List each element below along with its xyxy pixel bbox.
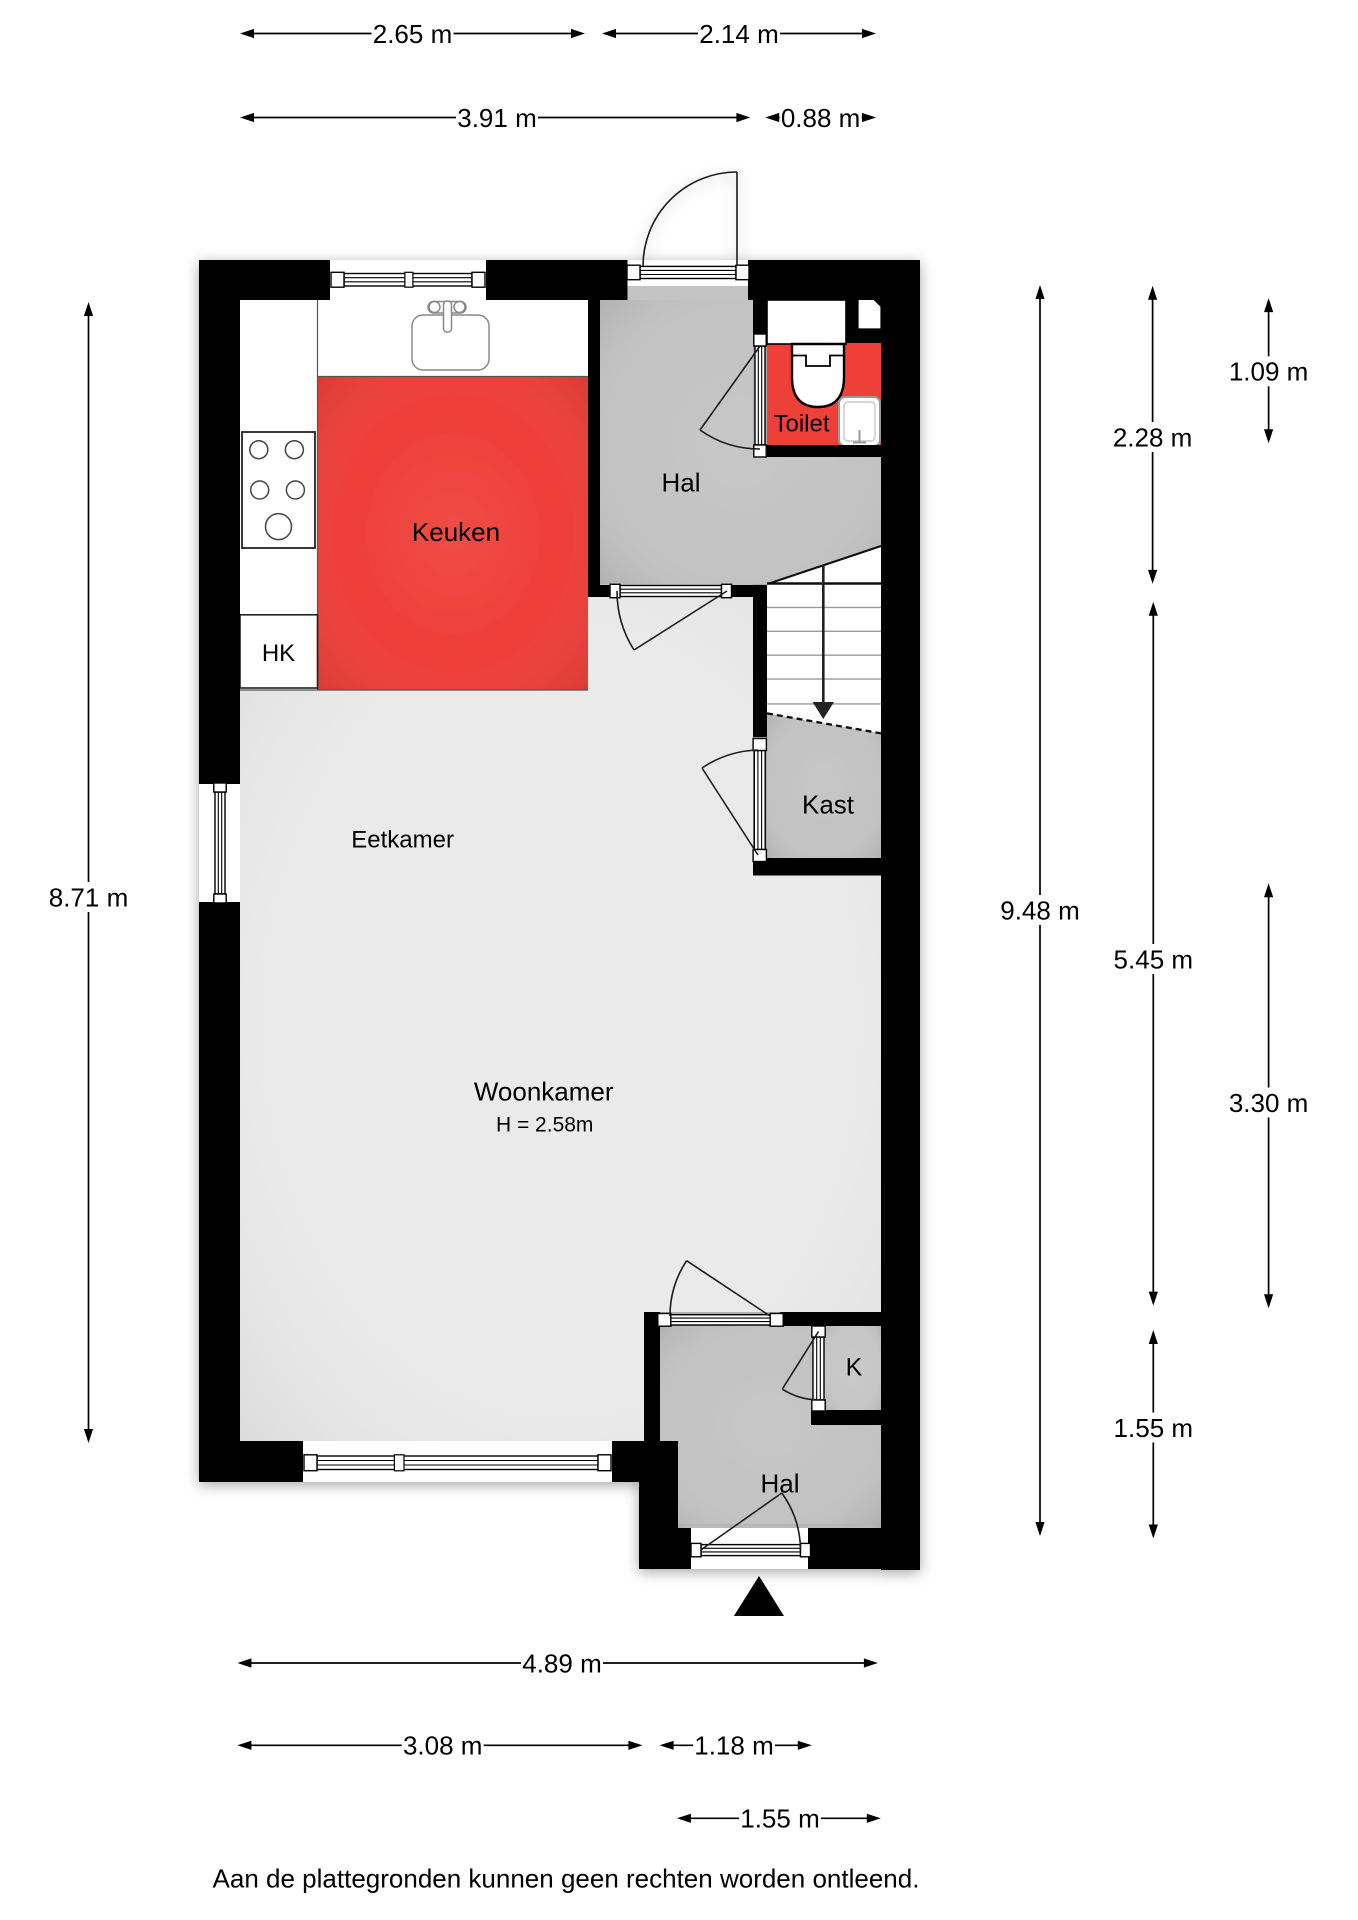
svg-text:3.91 m: 3.91 m <box>457 103 537 133</box>
svg-text:2.65 m: 2.65 m <box>373 19 453 49</box>
svg-text:1.09 m: 1.09 m <box>1229 357 1309 387</box>
svg-text:4.89 m: 4.89 m <box>522 1648 602 1678</box>
svg-text:9.48 m: 9.48 m <box>1000 895 1080 925</box>
svg-text:1.18 m: 1.18 m <box>694 1731 774 1761</box>
svg-text:2.28 m: 2.28 m <box>1113 422 1193 452</box>
svg-text:HK: HK <box>262 640 295 667</box>
svg-text:Keuken: Keuken <box>412 517 500 547</box>
svg-text:2.14 m: 2.14 m <box>699 19 779 49</box>
svg-text:3.08 m: 3.08 m <box>403 1731 483 1761</box>
svg-text:Toilet: Toilet <box>773 411 829 438</box>
svg-text:Hal: Hal <box>661 468 700 498</box>
svg-text:8.71 m: 8.71 m <box>49 882 129 912</box>
svg-text:K: K <box>846 1354 863 1382</box>
svg-text:0.88 m: 0.88 m <box>781 103 861 133</box>
svg-text:3.30 m: 3.30 m <box>1229 1088 1309 1118</box>
svg-text:Kast: Kast <box>802 790 855 820</box>
svg-text:1.55 m: 1.55 m <box>740 1804 820 1834</box>
svg-text:Aan de plattegronden kunnen ge: Aan de plattegronden kunnen geen rechten… <box>213 1864 920 1894</box>
svg-text:Hal: Hal <box>760 1469 799 1499</box>
svg-text:Woonkamer: Woonkamer <box>474 1077 614 1107</box>
svg-text:H = 2.58m: H = 2.58m <box>496 1113 593 1136</box>
svg-text:Eetkamer: Eetkamer <box>351 827 454 854</box>
svg-text:1.55 m: 1.55 m <box>1114 1413 1194 1443</box>
svg-text:5.45 m: 5.45 m <box>1114 944 1194 974</box>
